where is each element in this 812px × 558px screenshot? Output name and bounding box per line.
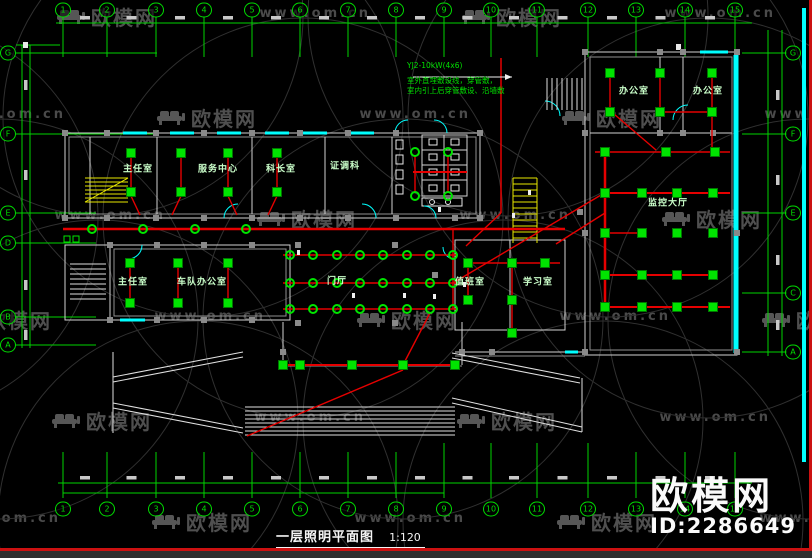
grid-bubble-right: G (785, 46, 801, 61)
grid-bubble-top: 15 (727, 3, 743, 18)
light-fixture-square (508, 259, 517, 268)
grid-bubble-bottom: 10 (483, 502, 499, 517)
grid-bubble-right: E (785, 206, 801, 221)
cable-annotation-line: 室外直埋敷设线，穿管敷， (407, 76, 505, 86)
light-fixture-square (273, 149, 282, 158)
light-fixture-square (708, 69, 717, 78)
room-label: 主任室 (123, 162, 153, 175)
light-fixture-square (656, 108, 665, 117)
room-label: 办公室 (693, 84, 723, 97)
grid-bubble-top: 12 (580, 3, 596, 18)
light-fixture-round (444, 148, 452, 156)
cable-annotation: YJ2-10kW(4x6) 室外直埋敷设线，穿管敷， 室内引上后穿管敷设、沿墙敷 (407, 61, 505, 96)
cad-drawing-canvas: 欧模网www.om.cn欧模网www.om.cnwww.om.cn欧模网www.… (0, 0, 812, 558)
room-label: 监控大厅 (648, 196, 688, 209)
light-fixture-square (126, 299, 135, 308)
grid-bubble-top: 3 (148, 3, 164, 18)
light-fixture-square (541, 259, 550, 268)
grid-bubble-bottom: 12 (580, 502, 596, 517)
grid-bubble-left: D (0, 236, 16, 251)
plan-title-text: 一层照明平面图 (276, 530, 374, 545)
light-fixture-square (709, 189, 718, 198)
light-fixture-square (606, 108, 615, 117)
room-label: 学习室 (523, 275, 553, 288)
drawing-sheet-edge (802, 8, 806, 462)
image-id: ID:2286649 (650, 515, 796, 538)
grid-bubble-top: 10 (483, 3, 499, 18)
light-fixture-square (451, 361, 460, 370)
light-fixture-square (638, 229, 647, 238)
light-fixture-square (508, 329, 517, 338)
bottom-strip (0, 551, 812, 558)
light-fixture-square (601, 148, 610, 157)
plan-scale: 1:120 (389, 531, 421, 544)
room-label: 证调科 (330, 159, 360, 172)
grid-bubble-top: 9 (436, 3, 452, 18)
room-label: 值班室 (455, 275, 485, 288)
light-fixture-square (177, 149, 186, 158)
grid-bubble-top: 13 (628, 3, 644, 18)
grid-bubble-bottom: 3 (148, 502, 164, 517)
grid-bubble-bottom: 7 (340, 502, 356, 517)
light-fixture-square (708, 108, 717, 117)
grid-bubble-top: 5 (244, 3, 260, 18)
grid-bubble-left: F (0, 127, 16, 142)
light-fixture-square (709, 271, 718, 280)
room-label: 主任室 (118, 275, 148, 288)
grid-bubble-bottom: 4 (196, 502, 212, 517)
light-fixture-square (224, 188, 233, 197)
room-label: 门厅 (327, 274, 347, 287)
site-logo: 欧模网 ID:2286649 (650, 477, 796, 538)
grid-bubble-top: 1 (55, 3, 71, 18)
light-fixture-square (601, 189, 610, 198)
light-fixture-square (709, 303, 718, 312)
light-fixture-square (224, 259, 233, 268)
room-label: 科长室 (266, 162, 296, 175)
light-fixture-square (601, 271, 610, 280)
light-fixture-square (638, 189, 647, 198)
grid-bubble-bottom: 6 (292, 502, 308, 517)
cable-annotation-line: 室内引上后穿管敷设、沿墙敷 (407, 86, 505, 96)
light-fixture-square (224, 299, 233, 308)
light-fixture-square (296, 361, 305, 370)
light-fixture-square (711, 148, 720, 157)
light-fixture-square (127, 149, 136, 158)
grid-bubble-top: 11 (529, 3, 545, 18)
light-fixture-square (464, 259, 473, 268)
light-fixture-square (399, 361, 408, 370)
light-fixture-square (224, 149, 233, 158)
grid-bubble-left: G (0, 46, 16, 61)
cable-annotation-line: YJ2-10kW(4x6) (407, 61, 505, 71)
grid-bubble-left: B (0, 310, 16, 325)
grid-bubble-left: A (0, 338, 16, 353)
wall-layer (65, 52, 737, 366)
light-fixture-square (348, 361, 357, 370)
site-logo-brand: 欧模网 (650, 477, 796, 515)
light-fixture-square (673, 271, 682, 280)
light-fixture-square (279, 361, 288, 370)
grid-bubble-bottom: 5 (244, 502, 260, 517)
grid-bubble-bottom: 1 (55, 502, 71, 517)
light-fixture-square (273, 188, 282, 197)
grid-bubble-bottom: 8 (388, 502, 404, 517)
grid-bubble-right: A (785, 345, 801, 360)
light-fixture-square (638, 271, 647, 280)
grid-bubble-top: 2 (99, 3, 115, 18)
plan-title: 一层照明平面图 1:120 (276, 526, 425, 549)
grid-bubble-right: C (785, 286, 801, 301)
light-fixture-square (127, 188, 136, 197)
light-fixture-square (177, 188, 186, 197)
light-fixture-square (638, 303, 647, 312)
grid-bubble-top: 14 (677, 3, 693, 18)
grid-bubble-bottom: 13 (628, 502, 644, 517)
light-fixture-square (126, 259, 135, 268)
room-label: 车队办公室 (177, 275, 227, 288)
light-fixture-square (656, 69, 665, 78)
grid-bubble-top: 6 (292, 3, 308, 18)
light-fixture-square (673, 229, 682, 238)
grid-bubble-bottom: 2 (99, 502, 115, 517)
light-fixture-square (709, 229, 718, 238)
grid-bubble-bottom: 9 (436, 502, 452, 517)
light-fixture-round (411, 148, 419, 156)
light-fixture-square (601, 229, 610, 238)
grid-bubble-bottom: 11 (529, 502, 545, 517)
grid-bubble-top: 4 (196, 3, 212, 18)
light-fixture-square (606, 69, 615, 78)
light-fixture-square (673, 303, 682, 312)
light-fixture-square (174, 299, 183, 308)
light-fixture-square (464, 296, 473, 305)
grid-bubble-top: 8 (388, 3, 404, 18)
grid-bubble-top: 7 (340, 3, 356, 18)
light-fixture-square (601, 303, 610, 312)
room-label: 服务中心 (198, 162, 238, 175)
light-fixture-square (662, 148, 671, 157)
grid-bubble-right: F (785, 127, 801, 142)
light-fixture-square (174, 259, 183, 268)
room-label: 办公室 (619, 84, 649, 97)
grid-bubble-left: E (0, 206, 16, 221)
light-fixture-square (508, 296, 517, 305)
